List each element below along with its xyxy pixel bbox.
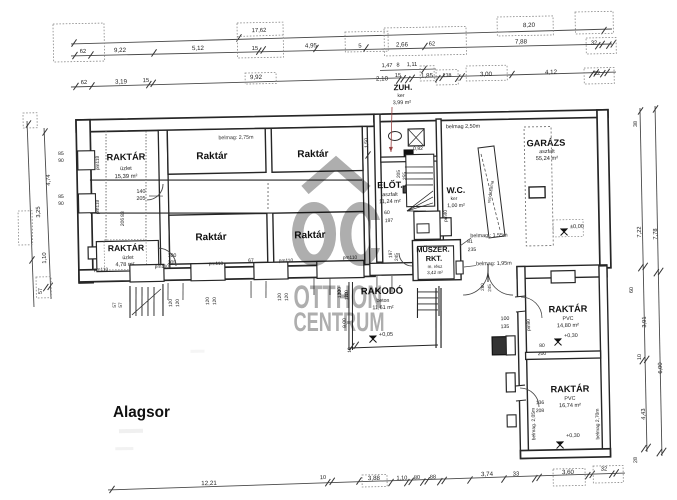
svg-text:ker: ker	[397, 93, 404, 99]
svg-text:90: 90	[58, 201, 64, 207]
svg-text:1,10: 1,10	[396, 475, 407, 481]
svg-text:Raktár: Raktár	[297, 149, 328, 161]
svg-text:9,92: 9,92	[250, 74, 263, 81]
svg-text:RAKTÁR: RAKTÁR	[550, 383, 589, 395]
svg-text:38: 38	[633, 121, 639, 127]
svg-text:200: 200	[538, 351, 547, 357]
svg-text:138: 138	[442, 73, 451, 79]
svg-text:4,74: 4,74	[46, 174, 52, 186]
svg-text:208: 208	[536, 408, 545, 414]
svg-text:4,12: 4,12	[545, 69, 558, 76]
svg-text:ZUH.: ZUH.	[394, 83, 413, 92]
svg-text:136: 136	[536, 400, 545, 406]
svg-text:90: 90	[58, 158, 64, 164]
svg-text:5,12: 5,12	[192, 45, 205, 52]
svg-text:belmag: 2,75m: belmag: 2,75m	[218, 135, 254, 142]
svg-text:±0,00: ±0,00	[570, 224, 584, 230]
svg-text:80: 80	[414, 475, 420, 481]
svg-text:83: 83	[120, 211, 126, 217]
svg-text:5: 5	[358, 44, 361, 50]
svg-text:belmag: 1,95m: belmag: 1,95m	[476, 261, 512, 268]
svg-text:pm110: pm110	[209, 261, 224, 267]
svg-text:0,82: 0,82	[413, 146, 423, 152]
svg-text:28: 28	[633, 457, 639, 463]
svg-text:57: 57	[38, 288, 44, 294]
svg-text:3,60: 3,60	[562, 469, 575, 476]
svg-text:85: 85	[58, 151, 64, 157]
svg-text:11,24 m²: 11,24 m²	[379, 199, 401, 205]
svg-text:16,74 m²: 16,74 m²	[559, 403, 581, 409]
svg-text:PVC: PVC	[564, 396, 575, 402]
svg-text:MŰSZER.: MŰSZER.	[416, 245, 449, 255]
svg-text:57: 57	[112, 302, 118, 308]
svg-text:205: 205	[396, 170, 402, 178]
svg-text:9,22: 9,22	[114, 47, 127, 54]
svg-text:197: 197	[388, 250, 394, 258]
svg-text:Alagsor: Alagsor	[113, 404, 170, 421]
svg-text:2,10: 2,10	[376, 75, 389, 82]
svg-text:10: 10	[637, 354, 643, 360]
svg-text:1,10: 1,10	[42, 252, 48, 263]
svg-text:üzlet: üzlet	[122, 255, 134, 261]
svg-text:17,62: 17,62	[252, 28, 267, 34]
svg-text:pm90: pm90	[526, 319, 532, 331]
svg-text:100: 100	[501, 316, 510, 322]
svg-text:rendszáma: rendszáma	[486, 180, 495, 204]
svg-text:67: 67	[248, 258, 254, 264]
svg-text:3,00: 3,00	[480, 71, 493, 78]
svg-text:belmag 2,50m: belmag 2,50m	[446, 124, 481, 131]
svg-text:206: 206	[120, 218, 126, 227]
svg-text:57: 57	[118, 302, 124, 308]
svg-text:3,19: 3,19	[115, 78, 128, 85]
svg-text:81: 81	[467, 239, 473, 245]
svg-text:8: 8	[396, 62, 399, 68]
svg-text:RAKTÁR: RAKTÁR	[106, 151, 145, 163]
svg-text:255: 255	[402, 172, 408, 180]
svg-text:Raktár: Raktár	[195, 232, 226, 244]
svg-text:CENTRUM: CENTRUM	[294, 307, 385, 337]
svg-text:3,74: 3,74	[481, 471, 494, 478]
svg-text:aszfalt: aszfalt	[382, 192, 398, 198]
svg-text:1,85: 1,85	[421, 72, 434, 79]
svg-text:32: 32	[594, 71, 601, 77]
svg-text:7,78: 7,78	[653, 228, 659, 239]
svg-text:ker: ker	[451, 196, 458, 202]
svg-text:100: 100	[168, 253, 177, 259]
svg-text:33: 33	[513, 471, 520, 477]
svg-text:PVC: PVC	[562, 316, 573, 322]
svg-text:62: 62	[429, 41, 436, 47]
svg-text:120: 120	[277, 293, 283, 301]
svg-text:pm118: pm118	[95, 155, 101, 170]
svg-text:10: 10	[320, 475, 326, 481]
svg-text:3,91: 3,91	[642, 316, 648, 327]
svg-text:m. rész: m. rész	[428, 264, 444, 269]
svg-text:245: 245	[487, 284, 492, 292]
svg-text:3,99 m²: 3,99 m²	[393, 100, 412, 106]
svg-text:235: 235	[468, 247, 477, 253]
svg-text:18: 18	[347, 347, 353, 353]
svg-text:ELŐT.: ELŐT.	[377, 179, 403, 190]
svg-text:32: 32	[601, 466, 608, 472]
svg-text:14,80 m²: 14,80 m²	[557, 323, 579, 329]
svg-text:pm110: pm110	[94, 267, 109, 273]
svg-text:15: 15	[252, 46, 259, 52]
svg-text:8,20: 8,20	[523, 22, 536, 29]
svg-text:260: 260	[480, 283, 485, 291]
svg-text:55,24 m²: 55,24 m²	[536, 156, 559, 162]
svg-text:pm110: pm110	[279, 258, 294, 264]
svg-text:15: 15	[395, 73, 401, 79]
svg-text:RAKTÁR: RAKTÁR	[548, 303, 587, 315]
svg-text:120: 120	[168, 299, 174, 307]
svg-text:+0,30: +0,30	[566, 433, 580, 439]
svg-text:1,50: 1,50	[364, 138, 370, 148]
svg-text:1,11: 1,11	[407, 62, 418, 68]
svg-text:4,43: 4,43	[641, 408, 647, 419]
svg-text:RKT.: RKT.	[426, 254, 443, 263]
svg-text:1,00 m²: 1,00 m²	[447, 203, 465, 209]
svg-text:+0,30: +0,30	[564, 333, 578, 339]
svg-text:aszfalt: aszfalt	[539, 149, 555, 155]
svg-text:W.C.: W.C.	[447, 185, 466, 195]
svg-text:4,95: 4,95	[305, 42, 318, 49]
svg-text:pm40: pm40	[443, 210, 449, 222]
svg-text:7,88: 7,88	[515, 38, 528, 45]
svg-text:RAKTÁR: RAKTÁR	[108, 243, 145, 254]
svg-text:pm118: pm118	[95, 199, 101, 214]
svg-text:60: 60	[629, 287, 635, 293]
svg-text:Raktár: Raktár	[196, 151, 227, 163]
svg-text:1,47: 1,47	[382, 63, 393, 69]
svg-text:3,88: 3,88	[368, 475, 381, 482]
svg-text:120: 120	[175, 299, 181, 307]
svg-text:88: 88	[430, 474, 436, 480]
svg-text:62: 62	[81, 80, 88, 86]
svg-text:pm110: pm110	[155, 264, 170, 270]
svg-text:3,25: 3,25	[36, 206, 42, 217]
svg-text:120: 120	[212, 297, 218, 305]
svg-text:3,42 m²: 3,42 m²	[427, 270, 443, 275]
svg-text:140: 140	[136, 189, 145, 195]
svg-text:135: 135	[501, 324, 510, 330]
svg-text:245: 245	[394, 253, 400, 261]
svg-text:15,39 m²: 15,39 m²	[115, 174, 138, 180]
svg-text:GARÁZS: GARÁZS	[526, 137, 565, 149]
svg-text:belmag. 2,05m: belmag. 2,05m	[531, 408, 538, 440]
svg-text:205: 205	[136, 196, 145, 202]
svg-text:85: 85	[58, 194, 64, 200]
svg-text:belmag 2,70m: belmag 2,70m	[595, 408, 602, 439]
svg-text:62: 62	[80, 49, 87, 55]
svg-text:2,66: 2,66	[396, 41, 409, 48]
svg-text:6,00: 6,00	[658, 362, 664, 373]
svg-text:32: 32	[591, 40, 598, 46]
svg-text:120: 120	[205, 297, 211, 305]
svg-text:120: 120	[284, 293, 290, 301]
svg-text:80: 80	[539, 343, 545, 349]
svg-text:12,21: 12,21	[201, 480, 217, 487]
svg-text:15: 15	[143, 78, 150, 84]
svg-text:60: 60	[384, 210, 390, 216]
svg-text:üzlet: üzlet	[120, 166, 132, 172]
svg-text:7,22: 7,22	[637, 226, 643, 237]
